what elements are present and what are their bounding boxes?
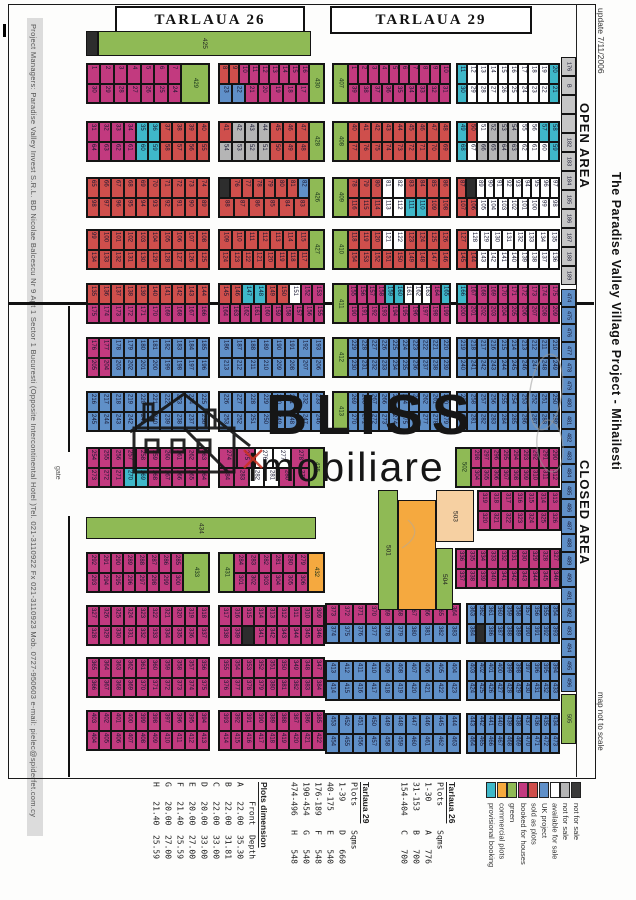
- plot-cell: 103: [136, 230, 148, 250]
- plot-cell: 289: [549, 412, 559, 432]
- plot-cell: 46: [416, 122, 427, 142]
- special-plot: 501: [378, 490, 398, 610]
- plot-cell: 223: [409, 338, 419, 358]
- plot-cell: 19: [270, 84, 283, 104]
- plot-cell: 163: [230, 304, 241, 324]
- plot-row: 155156157158159160161162163164165: [348, 284, 450, 304]
- scanned-map-page: Project Managers: Paradise Valley Invest…: [0, 0, 636, 900]
- plot-row: 393392391390389388387386385: [219, 711, 324, 731]
- plot-cell: 28: [477, 84, 487, 104]
- plot-row: 454455456457458459460461462463: [326, 734, 460, 754]
- plot-cell: 384: [312, 678, 324, 698]
- plot-cell: 352: [254, 658, 266, 678]
- plot-cell: 374: [185, 678, 197, 698]
- plot-cell: 195: [399, 304, 409, 324]
- plot-cell: 328: [539, 549, 549, 569]
- plot-cell: 27: [127, 84, 140, 104]
- plot-row: 292291290289288287286285: [87, 553, 183, 573]
- plot-cell: 185: [197, 338, 209, 358]
- plot-block: 4101181191201211221231241251261541531521…: [332, 229, 451, 270]
- plot-row: 404142434445464748: [348, 122, 450, 142]
- plot-cell: 203: [111, 358, 123, 378]
- plot-cell: 143: [477, 250, 487, 270]
- plot-cell: 141: [498, 250, 508, 270]
- plot-cell: 34: [405, 84, 416, 104]
- plot-cell: 435: [541, 714, 550, 734]
- plot-row: 424425426427428429430431432433: [467, 681, 559, 701]
- plot-cell: 87: [234, 198, 249, 218]
- plot-cell: 357: [522, 604, 531, 624]
- plot-cell: 226: [379, 338, 389, 358]
- plot-cell: 174: [539, 284, 549, 304]
- plot-cell: 372: [160, 678, 172, 698]
- plot-cell: 143: [185, 284, 197, 304]
- plot-cell: 337: [197, 626, 209, 646]
- plot-cell: 308: [510, 468, 520, 488]
- plot-cell: 465: [476, 734, 485, 754]
- plot-cell: 4: [127, 64, 140, 84]
- plot-cell: 412: [185, 731, 197, 751]
- plot-cell: 404: [447, 661, 460, 681]
- plot-cell: 207: [298, 358, 311, 378]
- plot-cell: 414: [326, 681, 339, 701]
- plot-cell: 359: [160, 658, 172, 678]
- plot-cell: 129: [480, 230, 491, 250]
- table-line: B 22.00 31.81: [221, 782, 233, 900]
- edge-plot-cell: 474: [561, 289, 576, 307]
- plot-cell: 344: [529, 569, 539, 589]
- plot-cell: 329: [529, 549, 539, 569]
- plot-block: 1112131415161718192030292827262524232221: [456, 63, 560, 104]
- plot-cell: 212: [232, 358, 245, 378]
- plot-cell: 377: [366, 624, 379, 644]
- bliss-logo: [128, 388, 256, 485]
- plot-cell: 317: [501, 491, 513, 511]
- plot-cell: 175: [87, 304, 99, 324]
- plot-cell: 371: [148, 678, 160, 698]
- plot-cell: 283: [488, 412, 498, 432]
- legend-swatch: [528, 782, 538, 798]
- plot-cell: 407: [406, 661, 419, 681]
- plot-cell: 64: [498, 142, 508, 162]
- plot-cell: 296: [491, 448, 501, 468]
- plot-cell: 7: [409, 64, 419, 84]
- plot-cell: 91: [494, 178, 503, 198]
- plot-row: 65666768697071727374: [87, 178, 209, 198]
- plot-cell: 80: [371, 178, 382, 198]
- plot-rows: 3633623613603593583573563553543843863873…: [467, 604, 559, 643]
- plot-cell: 312: [549, 468, 559, 488]
- plot-row: 87899091929394959697: [457, 178, 559, 198]
- edge-plot-cell: B: [561, 76, 576, 95]
- edge-plot-cell: 185: [561, 190, 576, 209]
- table-line: A 22.00 35.30: [233, 782, 245, 900]
- plot-cell: 109: [219, 230, 232, 250]
- plot-cell: 85: [427, 178, 438, 198]
- plot-cell: 417: [254, 731, 266, 751]
- plot-cell: 120: [371, 230, 382, 250]
- plot-cell: 292: [87, 553, 99, 573]
- plot-rows: 7879808182838485861161151141131121111101…: [348, 178, 450, 217]
- plot-cell: 399: [136, 711, 148, 731]
- special-plot: 434: [86, 517, 316, 539]
- plot-cell: 287: [147, 553, 159, 573]
- plot-cell: 401: [485, 661, 494, 681]
- plot-cell: 83: [405, 178, 416, 198]
- plot-block: 4134124114104094084074064054044144154164…: [325, 660, 461, 701]
- plot-cell: 390: [522, 624, 531, 644]
- plot-row: 99100101102103104105106107108: [87, 230, 209, 250]
- plot-cell: 111: [245, 230, 258, 250]
- plot-cell: 387: [495, 624, 504, 644]
- plot-block: 1091101111121131141151241231221211201191…: [218, 229, 325, 270]
- plot-cell: 77: [348, 142, 359, 162]
- legend-swatch: [560, 782, 570, 798]
- plot-cell: 27: [488, 84, 498, 104]
- plot-cell: 151: [382, 250, 393, 270]
- plot-cell: 145: [219, 284, 231, 304]
- plot-rows: 3193183173163153143133203213223233243253…: [478, 491, 560, 530]
- plot-cell: 42: [232, 122, 245, 142]
- plot-cell: 53: [232, 142, 245, 162]
- plot-row: 127128129130131132133134135: [457, 230, 559, 250]
- plot-cell: 75: [371, 142, 382, 162]
- plot-cell: 385: [312, 711, 324, 731]
- plot-cell: 89: [197, 198, 209, 218]
- plot-cell: 392: [541, 624, 550, 644]
- plot-rows: 3653643633623613603593583573563663673683…: [87, 658, 209, 697]
- plot-cell: 395: [185, 711, 197, 731]
- legend-label: booked for houses: [519, 803, 528, 865]
- plot-block: 3653643633623613603593583573563663673683…: [86, 657, 210, 698]
- plot-cell: 130: [136, 250, 148, 270]
- plot-cell: 186: [219, 338, 232, 358]
- plot-cell: 327: [550, 549, 560, 569]
- edge-plot-cell: 505: [561, 694, 576, 744]
- plot-rows: 2192182172162152142132122112102402412422…: [457, 338, 559, 377]
- plot-cell: 160: [261, 304, 272, 324]
- plot-cell: 344: [289, 626, 301, 646]
- plot-cell: 363: [467, 604, 476, 624]
- plot-cell: 20: [258, 84, 271, 104]
- plot-block: 3273263253243233223213203193183283293303…: [86, 605, 210, 646]
- gate-label: gate: [54, 466, 61, 480]
- plot-cell: 243: [488, 358, 498, 378]
- plot-cell: 316: [231, 606, 243, 626]
- plot-cell: 287: [528, 412, 538, 432]
- plot-cell: 82: [298, 178, 309, 198]
- plot-block: 9910010110210310410510610710813413313213…: [86, 229, 210, 270]
- plot-cell: 121: [253, 250, 264, 270]
- plot-row: 31323334353637383940: [87, 122, 209, 142]
- edge-plot-cell: 484: [561, 464, 576, 482]
- plot-cell: 150: [393, 250, 404, 270]
- edge-plot-cell: 480: [561, 394, 576, 412]
- plot-block: 1761771781791801811821831841852052042032…: [86, 337, 210, 378]
- edge-plot-cell: [561, 95, 576, 114]
- plot-cell: 373: [172, 678, 184, 698]
- plot-cell: 455: [339, 734, 352, 754]
- plot-cell: 95: [531, 178, 540, 198]
- plot-cell: 410: [366, 661, 379, 681]
- plot-cell: 386: [485, 624, 494, 644]
- plot-row: 301302303304305306: [234, 573, 308, 593]
- plot-cell: 315: [242, 606, 254, 626]
- plot-cell: 403: [467, 661, 476, 681]
- plot-cell: 436: [531, 714, 540, 734]
- plot-cell: 419: [393, 681, 406, 701]
- plot-cell: 55: [197, 142, 209, 162]
- plot-cell: 62: [518, 142, 528, 162]
- plot-cell: 414: [219, 731, 231, 751]
- plot-cell: 339: [231, 626, 243, 646]
- plot-cell: 391: [242, 711, 254, 731]
- plot-cell: 290: [549, 448, 559, 468]
- plot-cell: 171: [136, 304, 148, 324]
- plot-cell: 96: [111, 198, 123, 218]
- plot-rows: 4034024014003993983973963953944044054064…: [87, 711, 209, 750]
- plot-cell: 194: [389, 304, 399, 324]
- tarlaua-26-header: TARLAUA 26: [115, 6, 305, 34]
- plot-cell: 183: [172, 338, 184, 358]
- plot-cell: 61: [528, 142, 538, 162]
- road-plot-cell: 428: [309, 122, 324, 161]
- plot-cell: 416: [242, 731, 254, 751]
- plot-row: 327326325324323322321320319318: [87, 606, 209, 626]
- table-line: H 21.40 25.59: [149, 782, 161, 900]
- plot-row: 12345678910: [348, 64, 450, 84]
- plot-cell: 39: [348, 84, 359, 104]
- plot-row: 200201202203204205206207208209: [457, 304, 559, 324]
- plot-cell: 106: [467, 198, 477, 218]
- plot-cell: 315: [525, 491, 537, 511]
- plot-cell: 356: [531, 604, 540, 624]
- plot-cell: 12: [467, 64, 477, 84]
- plot-cell: 430: [522, 681, 531, 701]
- legend-label: not for sale: [561, 803, 570, 840]
- plot-cell: 324: [124, 606, 136, 626]
- plot-cell: 440: [495, 714, 504, 734]
- plot-cell: 472: [541, 734, 550, 754]
- plot-cell: 94: [136, 198, 148, 218]
- plot-row: 376377378379380381382383384: [219, 678, 324, 698]
- plot-cell: 100: [528, 198, 538, 218]
- edge-plot-cell: 475: [561, 307, 576, 325]
- plot-rows: 2922912902892882872862852932942952962972…: [87, 553, 183, 592]
- plot-cell: 138: [528, 250, 538, 270]
- plot-cell: 243: [111, 412, 123, 432]
- plot-cell: 16: [508, 64, 518, 84]
- plot-cell: 209: [272, 358, 285, 378]
- edge-plot-cell: 485: [561, 482, 576, 500]
- plot-cell: 290: [111, 553, 123, 573]
- plot-cell: 56: [185, 142, 197, 162]
- plot-cell: 49: [283, 142, 296, 162]
- plot-cell: 155: [348, 284, 357, 304]
- plot-cell: 173: [111, 304, 123, 324]
- table-line: Front Depth: [245, 782, 257, 900]
- legend-swatch: [571, 782, 581, 798]
- edge-plot-cell: 490: [561, 569, 576, 587]
- plot-cell: 220: [440, 338, 450, 358]
- plot-cell: 9: [229, 64, 239, 84]
- table-line: Plots Sqms: [433, 782, 445, 900]
- plot-cell: 350: [277, 658, 289, 678]
- plot-cell: 141: [160, 284, 172, 304]
- plot-cell: 53: [498, 122, 508, 142]
- plot-cell: 239: [440, 358, 450, 378]
- plot-cell: 235: [399, 358, 409, 378]
- plot-cell: 420: [289, 731, 301, 751]
- table-line: E 20.00 27.00: [185, 782, 197, 900]
- plot-cell: 157: [293, 304, 304, 324]
- plot-cell: 90: [185, 198, 197, 218]
- table-title: Plots dimension: [257, 782, 270, 900]
- road-plot-cell: 407: [333, 64, 348, 103]
- plot-cell: 133: [525, 230, 536, 250]
- plot-cell: 327: [87, 606, 99, 626]
- plot-cell: 333: [148, 626, 160, 646]
- plot-cell: 159: [272, 304, 283, 324]
- legend-swatch: [507, 782, 517, 798]
- plot-cell: 113: [270, 230, 283, 250]
- plot-cell: 151: [289, 284, 301, 304]
- plot-cell: 326: [548, 511, 560, 531]
- plot-cell: 104: [488, 198, 498, 218]
- edge-plot-cell: 176: [561, 57, 576, 76]
- plot-cell: 284: [498, 412, 508, 432]
- plot-cell: 35: [393, 84, 404, 104]
- plot-cell: 433: [550, 681, 559, 701]
- plot-row: 154153152151150149148147146: [348, 250, 450, 270]
- plot-cell: 380: [266, 678, 278, 698]
- plot-cell: 122: [393, 230, 404, 250]
- plot-block: 3553543533523513503493483473763773783793…: [218, 657, 325, 698]
- plot-cell: 67: [467, 142, 477, 162]
- plot-rows: 284283282281280279301302303304305306: [234, 553, 308, 592]
- plot-cell: 13: [477, 64, 487, 84]
- special-plot: [86, 31, 98, 56]
- plot-cell: 381: [277, 678, 289, 698]
- plot-cell: 3: [114, 64, 127, 84]
- plot-cell: 115: [359, 198, 370, 218]
- plot-cell: 242: [477, 358, 487, 378]
- plot-cell: 67: [111, 178, 123, 198]
- plot-cell: 398: [148, 711, 160, 731]
- plot-cell: 14: [279, 64, 289, 84]
- plot-rows: 3173163153143133123113103093383393413423…: [219, 606, 324, 645]
- plot-cell: 52: [488, 122, 498, 142]
- plot-cell: 245: [508, 358, 518, 378]
- plot-cell: 152: [301, 284, 313, 304]
- plot-cell: 296: [123, 573, 135, 593]
- legend-swatch: [486, 782, 496, 798]
- plot-rows: 3363353343333323313303293283273373383393…: [456, 549, 560, 588]
- plot-cell: 282: [477, 412, 487, 432]
- plot-cell: 72: [405, 142, 416, 162]
- plot-cell: 61: [124, 142, 136, 162]
- plot-cell: 25: [154, 84, 167, 104]
- plot-cell: 198: [172, 358, 184, 378]
- plot-cell: 334: [477, 549, 487, 569]
- plot-cell: 299: [159, 573, 171, 593]
- plot-cell: 36: [382, 84, 393, 104]
- plot-cell: 6: [399, 64, 409, 84]
- plot-cell: 21: [245, 84, 258, 104]
- plot-cell: 323: [136, 606, 148, 626]
- plot-cell: 431: [531, 681, 540, 701]
- plot-cell: 98: [87, 198, 99, 218]
- plot-cell: 320: [172, 606, 184, 626]
- plot-cell: 156: [357, 284, 366, 304]
- closed-area-label: CLOSED AREA: [577, 460, 592, 565]
- plot-cell: 456: [353, 734, 366, 754]
- plot-row: 363362361360359358357356355354: [467, 604, 559, 624]
- plot-cell: 390: [254, 711, 266, 731]
- plot-cell: 447: [406, 714, 419, 734]
- plot-cell: 26: [498, 84, 508, 104]
- plot-rows: 404142434445464748777675747372717069: [348, 122, 450, 161]
- plot-block: 4034024014003993983973963953944244254264…: [466, 660, 560, 701]
- plot-cell: 233: [379, 358, 389, 378]
- edge-plot-cell: 183: [561, 152, 576, 171]
- plot-cell: 25: [508, 84, 518, 104]
- plot-cell: 18: [283, 84, 296, 104]
- plot-cell: 8: [219, 64, 229, 84]
- plot-row: 8910111213141516: [219, 64, 309, 84]
- plot-cell: 317: [219, 606, 231, 626]
- plot-cell: 311: [539, 468, 549, 488]
- plot-cell: 373: [326, 604, 339, 624]
- plot-row: 337338339340341342343344345346: [456, 569, 560, 589]
- plot-cell: 181: [148, 338, 160, 358]
- plot-cell: 120: [264, 250, 275, 270]
- table-title: Tarlaua 29: [359, 782, 372, 900]
- plot-cell: 74: [197, 178, 209, 198]
- table-line: 154-404 C 700: [397, 782, 409, 900]
- plot-cell: 454: [326, 734, 339, 754]
- plot-cell: 358: [172, 658, 184, 678]
- plot-cell: 79: [359, 178, 370, 198]
- plot-cell: 107: [185, 230, 197, 250]
- plot-cell: 200: [457, 304, 467, 324]
- plot-cell: 377: [231, 678, 243, 698]
- plot-cell: 393: [550, 624, 559, 644]
- edge-plot-cell: 481: [561, 412, 576, 430]
- plot-cell: 19: [539, 64, 549, 84]
- plot-cell: 73: [393, 142, 404, 162]
- plot-cell: 378: [380, 624, 393, 644]
- legend-label: green: [508, 803, 517, 822]
- plot-cell: 241: [467, 358, 477, 378]
- plot-rows: 1112131415161718192030292827262524232221: [457, 64, 559, 103]
- plot-cell: 286: [159, 553, 171, 573]
- plot-cell: 228: [358, 338, 368, 358]
- plot-cell: 460: [406, 734, 419, 754]
- plot-cell: 193: [311, 338, 324, 358]
- plot-cell: 69: [439, 142, 450, 162]
- plot-row: 328329330331332333334335336337: [87, 626, 209, 646]
- plot-cell: 44: [258, 122, 271, 142]
- plot-cell: 134: [87, 250, 99, 270]
- plot-cell: 422: [433, 681, 446, 701]
- plot-cell: 21: [549, 84, 559, 104]
- special-plot: 504: [436, 548, 453, 610]
- plot-row: 888786858483: [219, 198, 309, 218]
- plot-cell: 123: [405, 230, 416, 250]
- plot-cell: 230: [348, 358, 358, 378]
- plot-rows: 1091101111121131141151241231221211201191…: [219, 230, 309, 269]
